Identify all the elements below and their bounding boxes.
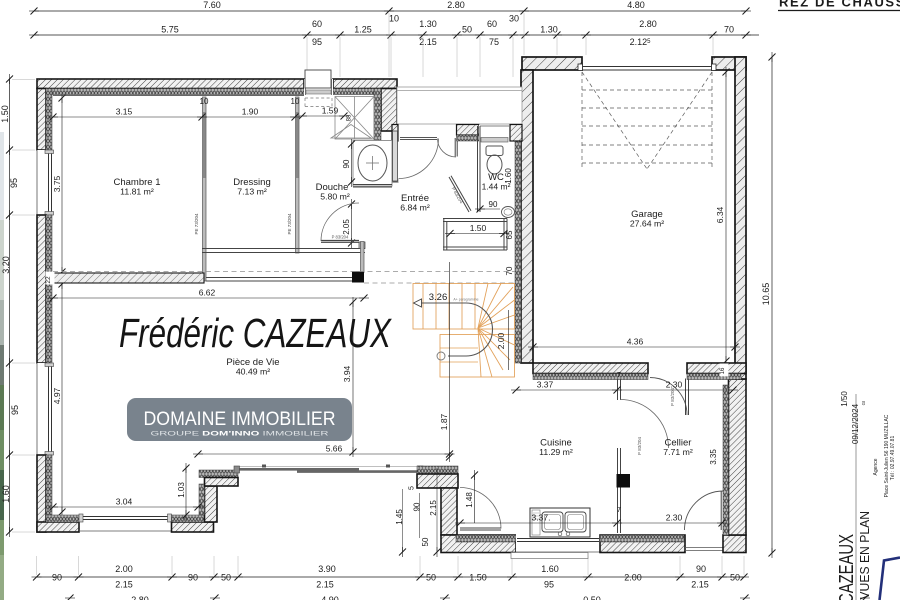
svg-text:P 83/204: P 83/204 [670, 388, 675, 406]
svg-text:1/50: 1/50 [840, 391, 849, 407]
svg-text:CAZEAUX: CAZEAUX [836, 534, 858, 600]
svg-text:Frédéric CAZEAUX: Frédéric CAZEAUX [119, 310, 392, 356]
svg-text:90: 90 [489, 200, 498, 209]
svg-text:50: 50 [462, 25, 472, 35]
svg-text:1.25: 1.25 [354, 25, 372, 35]
svg-text:2.15: 2.15 [316, 580, 334, 590]
svg-text:30: 30 [509, 14, 519, 24]
svg-text:90: 90 [413, 502, 422, 511]
svg-text:0.50: 0.50 [583, 595, 601, 600]
svg-text:90: 90 [696, 564, 706, 574]
svg-text:4.90: 4.90 [321, 595, 339, 600]
svg-text:1.60: 1.60 [541, 564, 559, 574]
svg-text:3.90: 3.90 [318, 564, 336, 574]
svg-text:75: 75 [489, 37, 499, 47]
svg-text:3.35: 3.35 [709, 449, 718, 465]
svg-text:2.80: 2.80 [639, 19, 657, 29]
svg-text:3.37.: 3.37. [532, 513, 551, 523]
svg-text:4.80: 4.80 [627, 0, 645, 10]
svg-text:REZ DE CHAUSSÉE: REZ DE CHAUSSÉE [779, 0, 900, 10]
svg-text:88: 88 [347, 114, 353, 121]
svg-text:PE 73/204: PE 73/204 [287, 213, 292, 235]
svg-text:3.04: 3.04 [116, 497, 133, 507]
svg-text:95: 95 [9, 178, 19, 188]
svg-text:7: 7 [617, 505, 621, 514]
svg-text:11.81 m²: 11.81 m² [120, 187, 154, 197]
svg-text:2.15: 2.15 [691, 580, 709, 590]
svg-text:95: 95 [10, 405, 20, 415]
svg-text:Agence: Agence [873, 458, 879, 475]
svg-text:5.66: 5.66 [326, 444, 343, 454]
svg-text:2.15: 2.15 [419, 37, 437, 47]
svg-text:40.49 m²: 40.49 m² [236, 367, 270, 377]
svg-text:5: 5 [409, 486, 416, 490]
svg-text:50: 50 [421, 537, 430, 546]
svg-text:2.30: 2.30 [666, 513, 683, 523]
svg-text:6.84 m²: 6.84 m² [400, 203, 430, 213]
svg-text:1.50: 1.50 [470, 223, 487, 233]
svg-text:95: 95 [312, 37, 322, 47]
svg-text:2.00: 2.00 [496, 332, 506, 349]
svg-text:A+ paragramme: A+ paragramme [453, 298, 478, 302]
svg-text:50: 50 [221, 573, 231, 583]
svg-text:2.00: 2.00 [115, 564, 133, 574]
svg-text:10: 10 [200, 97, 209, 106]
svg-text:1.60: 1.60 [504, 168, 513, 184]
svg-text:60: 60 [312, 19, 322, 29]
svg-text:DOMAINE IMMOBILIER: DOMAINE IMMOBILIER [144, 409, 336, 430]
svg-text:7: 7 [617, 370, 621, 379]
svg-text:65: 65 [505, 230, 514, 239]
svg-text:90: 90 [342, 159, 351, 168]
svg-text:3.15: 3.15 [116, 107, 133, 117]
svg-text:GI: GI [861, 401, 866, 406]
svg-text:1.03: 1.03 [177, 482, 186, 498]
svg-text:22: 22 [45, 276, 52, 284]
svg-text:10.65: 10.65 [761, 283, 771, 306]
svg-text:1.87: 1.87 [439, 413, 449, 430]
svg-text:2.80: 2.80 [131, 595, 149, 600]
svg-text:PE 73/204: PE 73/204 [194, 213, 199, 235]
svg-text:2.15: 2.15 [115, 580, 133, 590]
svg-text:6.62: 6.62 [199, 288, 216, 298]
svg-text:2.00: 2.00 [624, 573, 642, 583]
svg-text:11.29 m²: 11.29 m² [539, 447, 573, 457]
svg-text:5.75: 5.75 [161, 25, 179, 35]
svg-text:90: 90 [188, 573, 198, 583]
svg-text:1.30: 1.30 [540, 25, 558, 35]
svg-text:6.34: 6.34 [715, 206, 725, 223]
svg-text:50: 50 [426, 573, 436, 583]
svg-text:60: 60 [487, 19, 497, 29]
svg-text:4.36: 4.36 [627, 337, 644, 347]
svg-text:95: 95 [544, 580, 554, 590]
svg-text:09/12/2024: 09/12/2024 [851, 403, 860, 444]
svg-text:7.60: 7.60 [203, 0, 221, 10]
svg-text:1.48: 1.48 [465, 492, 474, 508]
svg-text:1.60: 1.60 [1, 485, 11, 503]
svg-text:2.05: 2.05 [342, 219, 351, 235]
svg-text:90: 90 [52, 573, 62, 583]
svg-text:Tél : 02.97.49.07.81: Tél : 02.97.49.07.81 [890, 436, 896, 481]
svg-text:7.13 m²: 7.13 m² [237, 187, 267, 197]
svg-text:5.80 m²: 5.80 m² [320, 192, 350, 202]
svg-text:P 83/204: P 83/204 [637, 437, 642, 455]
svg-text:2.30: 2.30 [666, 380, 683, 390]
svg-text:1.59: 1.59 [322, 106, 339, 116]
svg-text:P 83/204: P 83/204 [332, 235, 349, 240]
svg-text:- VUES EN PLAN: - VUES EN PLAN [858, 511, 872, 600]
svg-text:16: 16 [720, 367, 726, 374]
svg-text:2.80: 2.80 [447, 0, 465, 10]
svg-text:3.94: 3.94 [342, 365, 352, 382]
svg-text:70: 70 [505, 266, 514, 275]
svg-text:3.26: 3.26 [429, 292, 448, 303]
svg-text:7.71 m²: 7.71 m² [663, 447, 693, 457]
svg-text:50: 50 [730, 573, 740, 583]
svg-text:1.90: 1.90 [242, 107, 259, 117]
svg-text:1.50: 1.50 [0, 105, 10, 123]
svg-text:3.37: 3.37 [537, 380, 554, 390]
svg-text:1.30: 1.30 [419, 19, 437, 29]
svg-text:GROUPE DOM’INNO IMMOBILIER: GROUPE DOM’INNO IMMOBILIER [151, 431, 330, 438]
svg-text:10: 10 [389, 14, 399, 24]
svg-text:3.20: 3.20 [1, 256, 11, 274]
svg-text:70: 70 [724, 25, 734, 35]
svg-text:27.64 m²: 27.64 m² [630, 219, 664, 229]
svg-text:2.15: 2.15 [429, 500, 438, 516]
svg-text:1.50: 1.50 [469, 573, 487, 583]
svg-text:10: 10 [291, 97, 300, 106]
